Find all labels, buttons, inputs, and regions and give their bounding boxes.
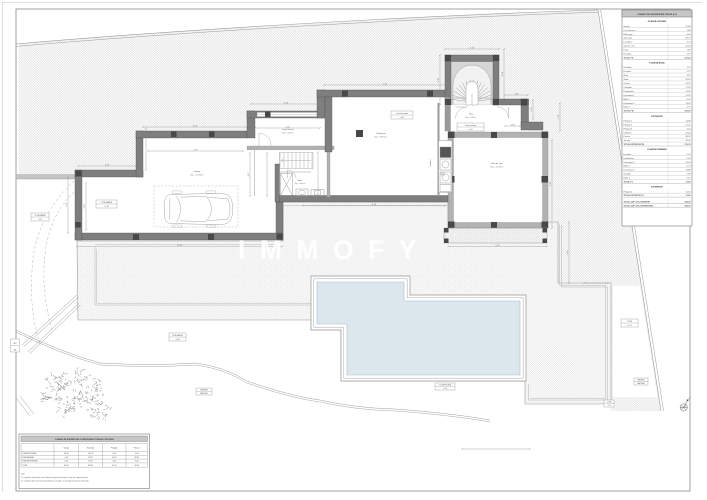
- svg-text:COTA RAMPA: COTA RAMPA: [35, 214, 47, 217]
- svg-text:+0.60: +0.60: [175, 339, 179, 341]
- svg-text:Piscina: Piscina: [134, 448, 141, 450]
- svg-text:Gimnasio: Gimnasio: [624, 38, 633, 40]
- svg-text:PLANTA BAJA: PLANTA BAJA: [649, 62, 665, 65]
- svg-text:Baño gym: Baño gym: [624, 33, 633, 36]
- svg-text:Lavadero: Lavadero: [430, 159, 432, 167]
- svg-text:76.09: 76.09: [88, 461, 93, 463]
- svg-text:TOTAL: TOTAL: [22, 464, 28, 467]
- svg-text:nota:: nota:: [21, 473, 25, 476]
- svg-text:Cota terminada: Cota terminada: [465, 124, 477, 127]
- svg-text:TOTAL SUP. ÚTIL EXTERIORES: TOTAL SUP. ÚTIL EXTERIORES: [624, 204, 654, 207]
- svg-text:29.44: 29.44: [685, 132, 691, 134]
- svg-text:Distribuidor: Distribuidor: [624, 157, 634, 160]
- svg-text:CUADRO DE SUPERFICIES CONSTRUI: CUADRO DE SUPERFICIES CONSTRUIDAS TOTALE…: [55, 438, 114, 441]
- svg-text:Dormitorio 4: Dormitorio 4: [624, 169, 636, 172]
- svg-text:Sup.: ±25.04 m²: Sup.: ±25.04 m²: [490, 166, 504, 169]
- svg-text:PLANTA SÓTANO: PLANTA SÓTANO: [648, 20, 667, 23]
- svg-text:*La superficie de las terrazas: *La superficie de las terrazas descubier…: [21, 479, 90, 482]
- svg-text:Pérgola: Pérgola: [111, 447, 118, 450]
- svg-text:Escalera: Escalera: [624, 154, 633, 156]
- svg-text:COTA PISCINA: COTA PISCINA: [439, 384, 452, 387]
- svg-text:50.03: 50.03: [112, 457, 117, 459]
- svg-text:Dormitorio 3: Dormitorio 3: [624, 102, 636, 105]
- svg-text:48.02: 48.02: [135, 465, 140, 467]
- svg-text:COTA JARDIN: COTA JARDIN: [172, 334, 184, 337]
- svg-text:0.00: 0.00: [65, 461, 69, 463]
- svg-text:25.04: 25.04: [685, 46, 691, 48]
- svg-text:17.39: 17.39: [685, 87, 691, 89]
- svg-text:Garaje: Garaje: [624, 26, 631, 28]
- svg-text:PLANTA PRIMERA: PLANTA PRIMERA: [647, 148, 667, 151]
- svg-text:Gimnasio: Gimnasio: [376, 133, 386, 135]
- svg-text:Baño: Baño: [298, 179, 302, 182]
- svg-text:NATURAL: NATURAL: [200, 392, 208, 395]
- svg-text:Lavadero: Lavadero: [624, 42, 633, 44]
- svg-text:PLANTA BAJA: PLANTA BAJA: [22, 456, 35, 459]
- svg-text:334.34: 334.34: [684, 200, 691, 203]
- svg-text:13.39: 13.39: [685, 103, 691, 105]
- svg-text:13.88: 13.88: [685, 170, 691, 172]
- svg-text:0.00: 0.00: [113, 453, 117, 455]
- svg-text:Terraza: Terraza: [624, 140, 632, 142]
- svg-text:14.48: 14.48: [685, 120, 691, 122]
- svg-text:135.58: 135.58: [88, 453, 94, 455]
- svg-text:PLANTA PRIMERA: PLANTA PRIMERA: [22, 460, 38, 463]
- svg-text:178.27: 178.27: [88, 457, 94, 459]
- svg-text:Pérgola 2: Pérgola 2: [624, 124, 633, 126]
- svg-text:Sup.: ±7.80 m²: Sup.: ±7.80 m²: [465, 116, 476, 119]
- svg-text:Cota terminada: Cota terminada: [396, 112, 408, 115]
- svg-text:48.02: 48.02: [685, 136, 691, 138]
- svg-text:Garaje: Garaje: [194, 170, 201, 173]
- svg-text:EXTERIOR: EXTERIOR: [651, 116, 663, 118]
- svg-text:Sala de cine: Sala de cine: [491, 163, 503, 165]
- svg-text:0.00: 0.00: [113, 461, 117, 463]
- svg-text:Pérgola 1: Pérgola 1: [624, 120, 633, 122]
- svg-text:Chill-Out: Chill-Out: [624, 131, 632, 134]
- svg-text:14.29: 14.29: [685, 95, 691, 97]
- svg-text:TOTAL PB: TOTAL PB: [624, 110, 634, 113]
- svg-text:14.74: 14.74: [685, 162, 691, 164]
- svg-text:NATURAL: NATURAL: [637, 382, 645, 385]
- svg-text:0.00: 0.00: [65, 457, 69, 459]
- svg-text:Dormitorio 1: Dormitorio 1: [624, 94, 636, 97]
- svg-text:Sup.: ±38.74 m²: Sup.: ±38.74 m²: [374, 136, 388, 139]
- svg-text:PLANTA SÓTANO: PLANTA SÓTANO: [22, 452, 37, 455]
- svg-text:Comedor: Comedor: [624, 87, 633, 89]
- svg-text:50.03: 50.03: [112, 465, 117, 467]
- svg-text:Paso: Paso: [469, 114, 473, 116]
- svg-text:389.94: 389.94: [88, 465, 94, 467]
- svg-text:Local técnico: Local técnico: [282, 128, 295, 131]
- svg-text:+1.45: +1.45: [468, 129, 472, 131]
- svg-text:Local técnico: Local técnico: [624, 29, 637, 32]
- svg-text:IMMOFY: IMMOFY: [238, 235, 431, 265]
- svg-text:TOTAL P1: TOTAL P1: [624, 181, 634, 184]
- svg-text:TOTAL EXTERIOR PB: TOTAL EXTERIOR PB: [624, 143, 645, 146]
- svg-text:*La superficie de piscina son: *La superficie de piscina son la lámina …: [21, 476, 88, 479]
- svg-text:+1.20: +1.20: [38, 219, 42, 221]
- svg-text:Sup.: ±52.38 m²: Sup.: ±52.38 m²: [190, 174, 204, 177]
- svg-text:Piscina: Piscina: [624, 136, 631, 138]
- svg-text:+1.00: +1.00: [443, 388, 447, 390]
- svg-text:Baño 1: Baño 1: [624, 98, 631, 101]
- svg-text:EXTERIOR: EXTERIOR: [651, 187, 663, 189]
- svg-text:Sup.: ±7.84 m²: Sup.: ±7.84 m²: [282, 131, 294, 134]
- svg-text:Salón: Salón: [624, 79, 629, 81]
- svg-text:CUADRO DE SUPERFICIES ÚTILES (: CUADRO DE SUPERFICIES ÚTILES (m²): [637, 13, 677, 16]
- svg-text:Garaje: Garaje: [63, 447, 69, 450]
- svg-text:0.00: 0.00: [135, 461, 139, 463]
- svg-text:Distribuidor: Distribuidor: [624, 90, 634, 93]
- svg-text:TOTAL SUP. ÚTIL INTERIOR: TOTAL SUP. ÚTIL INTERIOR: [624, 200, 651, 203]
- svg-text:+1.40: +1.40: [104, 206, 108, 208]
- svg-text:48.46: 48.46: [64, 453, 69, 455]
- svg-text:Vestidor: Vestidor: [624, 173, 632, 176]
- svg-text:21.47: 21.47: [685, 124, 691, 126]
- svg-text:48.02: 48.02: [135, 457, 140, 459]
- svg-text:Sala de cine: Sala de cine: [624, 46, 636, 48]
- svg-text:147.63: 147.63: [684, 56, 691, 59]
- svg-text:Pérgola 3: Pérgola 3: [624, 128, 633, 130]
- svg-text:52.38: 52.38: [685, 26, 691, 28]
- svg-text:Escalera: Escalera: [624, 71, 633, 73]
- svg-text:176.74: 176.74: [684, 143, 691, 146]
- svg-text:Cocina: Cocina: [624, 83, 631, 85]
- svg-text:TOTAL PS: TOTAL PS: [624, 56, 634, 59]
- svg-text:38.74: 38.74: [685, 38, 691, 40]
- svg-text:Baño 2: Baño 2: [624, 165, 631, 168]
- svg-text:49.03: 49.03: [685, 140, 691, 142]
- svg-text:Escalera: Escalera: [624, 54, 633, 56]
- svg-text:Dormitorio 2: Dormitorio 2: [624, 161, 636, 164]
- svg-text:+0.9: +0.9: [607, 405, 610, 407]
- svg-text:0.00: 0.00: [135, 453, 139, 455]
- svg-text:28.62: 28.62: [685, 79, 691, 81]
- svg-text:COTA GARAJE: COTA GARAJE: [101, 201, 114, 204]
- svg-text:Vestíbulo: Vestíbulo: [624, 66, 633, 69]
- svg-text:Vivienda: Vivienda: [87, 448, 95, 450]
- svg-text:16.37: 16.37: [685, 83, 691, 85]
- svg-text:Sup.: ±4.48 m²: Sup.: ±4.48 m²: [294, 182, 305, 185]
- svg-text:Baño 3: Baño 3: [624, 106, 631, 109]
- svg-text:+1.05: +1.05: [627, 325, 631, 327]
- svg-text:48.46: 48.46: [64, 465, 69, 467]
- svg-text:Pérgola 4: Pérgola 4: [624, 191, 633, 193]
- svg-text:TOTAL EXTERIOR P1: TOTAL EXTERIOR P1: [624, 194, 645, 197]
- svg-text:+1.45: +1.45: [400, 117, 404, 119]
- svg-text:Baño 4: Baño 4: [624, 177, 631, 180]
